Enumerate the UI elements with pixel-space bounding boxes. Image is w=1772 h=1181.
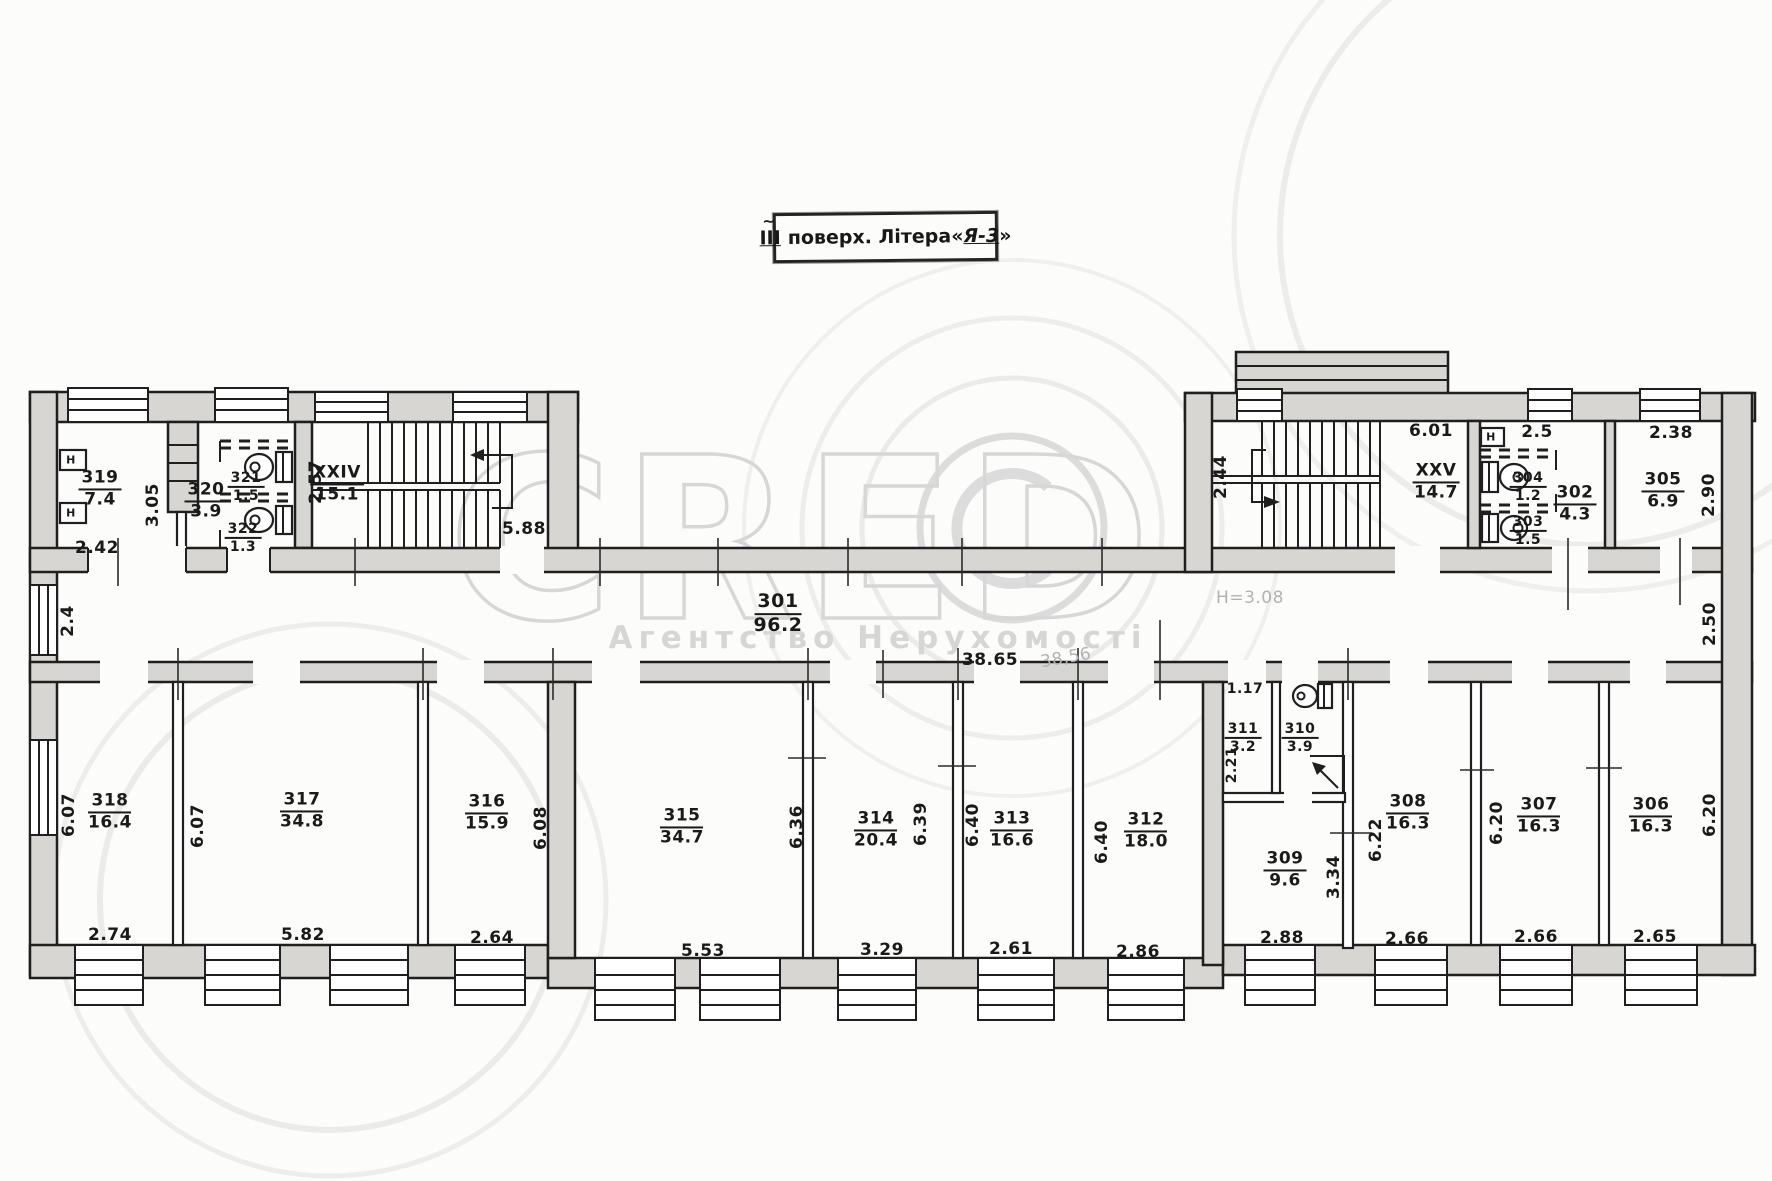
dim-corridor-length: 38.65 — [962, 650, 1018, 670]
room-number: 319 — [79, 468, 122, 490]
room-area: 20.4 — [854, 831, 898, 851]
room-label-316: 316 15.9 — [465, 792, 509, 833]
dim-313-left: 6.40 — [963, 803, 983, 847]
dim-317-bottom: 5.82 — [281, 925, 325, 945]
room-label-312: 312 18.0 — [1124, 810, 1168, 851]
room-label-302: 302 4.3 — [1554, 483, 1597, 524]
floor-plan-page: CRED Агентство Нерухомості — [0, 0, 1772, 1181]
dim-319-opening: 2.42 — [75, 538, 119, 558]
shower-icon-310 — [1310, 756, 1344, 792]
room-area: 34.8 — [280, 812, 324, 832]
room-label-322: 322 1.3 — [225, 521, 262, 555]
room-number: 312 — [1124, 810, 1167, 832]
room-area: 7.4 — [84, 490, 116, 510]
room-number: 303 — [1510, 514, 1547, 532]
room-area: 4.3 — [1559, 505, 1591, 525]
room-area: 16.4 — [88, 813, 132, 833]
room-number: 310 — [1282, 721, 1319, 739]
dim-305-right: 2.90 — [1699, 473, 1719, 517]
room-number: 314 — [854, 809, 897, 831]
room-number: 318 — [88, 791, 131, 813]
dim-314-bottom: 3.29 — [860, 940, 904, 960]
niche-symbol: Н — [1486, 431, 1496, 444]
room-label-301-corridor: 301 96.2 — [754, 591, 803, 637]
room-label-317: 317 34.8 — [280, 790, 324, 831]
room-number: 306 — [1629, 795, 1672, 817]
room-number: 320 — [185, 480, 228, 502]
room-area: 16.6 — [990, 831, 1034, 851]
room-number: 302 — [1554, 483, 1597, 505]
room-area: 16.3 — [1386, 814, 1430, 834]
room-area: 1.5 — [233, 488, 259, 504]
room-number: 321 — [228, 470, 265, 488]
room-number: 304 — [1510, 470, 1547, 488]
dim-308-left: 6.22 — [1366, 818, 1386, 862]
stair-name: XXV — [1413, 461, 1460, 483]
title-close-quote: » — [999, 225, 1012, 247]
room-number: 311 — [1225, 721, 1262, 739]
room-area: 3.9 — [190, 502, 222, 522]
dim-312-left: 6.40 — [1092, 820, 1112, 864]
room-number: 313 — [990, 809, 1033, 831]
room-area: 34.7 — [660, 828, 704, 848]
dim-306-right: 6.20 — [1700, 793, 1720, 837]
walls-bottom-row — [30, 682, 1755, 1020]
dim-308-bottom: 2.66 — [1385, 929, 1429, 949]
dim-309-bottom: 2.88 — [1260, 928, 1304, 948]
room-number: 309 — [1264, 849, 1307, 871]
dim-318-bottom: 2.74 — [88, 925, 132, 945]
room-label-320: 320 3.9 — [185, 480, 228, 521]
floor-plan-linework: CRED Агентство Нерухомості — [0, 0, 1772, 1181]
room-area: 15.9 — [465, 814, 509, 834]
title-floor-tilde: ~ — [762, 212, 775, 230]
room-label-318: 318 16.4 — [88, 791, 132, 832]
dim-307-bottom: 2.66 — [1514, 927, 1558, 947]
dim-311-left: 2.21 — [1224, 747, 1240, 784]
toilet-icon-310 — [1293, 684, 1332, 708]
room-area: 3.9 — [1287, 739, 1313, 755]
dim-317-left: 6.07 — [188, 804, 208, 848]
room-label-305: 305 6.9 — [1642, 470, 1685, 511]
dim-313-bottom: 2.61 — [989, 939, 1033, 959]
room-label-313: 313 16.6 — [990, 809, 1034, 850]
room-area: 6.9 — [1647, 492, 1679, 512]
dim-316-right: 6.08 — [531, 806, 551, 850]
dim-302-top: 2.5 — [1521, 422, 1553, 442]
title-text: поверх. Літера — [788, 225, 952, 249]
title-open-quote: « — [951, 225, 964, 247]
room-area: 16.3 — [1629, 817, 1673, 837]
room-label-315: 315 34.7 — [660, 806, 704, 847]
niche-symbol: Н — [66, 454, 76, 467]
room-number: 308 — [1386, 792, 1429, 814]
dim-315-bottom: 5.53 — [681, 941, 725, 961]
dim-stair25-landing: 2.44 — [1211, 455, 1231, 499]
room-number: 307 — [1517, 795, 1560, 817]
dim-316-bottom: 2.64 — [470, 928, 514, 948]
room-number: 322 — [225, 521, 262, 539]
dim-stair24-width: 5.88 — [502, 519, 546, 539]
dim-stair24-depth: 2.57 — [306, 460, 326, 504]
dim-309-right: 3.34 — [1324, 855, 1344, 899]
stair-label-xxv: XXV 14.7 — [1413, 461, 1460, 502]
room-label-321: 321 1.5 — [228, 470, 265, 504]
dim-307-left: 6.20 — [1487, 801, 1507, 845]
room-label-306: 306 16.3 — [1629, 795, 1673, 836]
room-label-314: 314 20.4 — [854, 809, 898, 850]
room-label-309: 309 9.6 — [1264, 849, 1307, 890]
room-area: 1.5 — [1515, 532, 1541, 548]
room-label-308: 308 16.3 — [1386, 792, 1430, 833]
dim-shaft-319: 3.05 — [143, 483, 163, 527]
room-area: 18.0 — [1124, 832, 1168, 852]
room-number: 305 — [1642, 470, 1685, 492]
note-ceiling-height: H=3.08 — [1216, 588, 1284, 608]
room-label-304: 304 1.2 — [1510, 470, 1547, 504]
dim-314-right: 6.39 — [911, 802, 931, 846]
room-area: 16.3 — [1517, 817, 1561, 837]
dim-305-top: 2.38 — [1649, 423, 1693, 443]
room-area: 1.2 — [1515, 488, 1541, 504]
room-area: 9.6 — [1269, 871, 1301, 891]
title-floor: ~ ІІІ — [759, 227, 780, 249]
dim-312-bottom: 2.86 — [1116, 942, 1160, 962]
room-label-319: 319 7.4 — [79, 468, 122, 509]
dim-306-bottom: 2.65 — [1633, 927, 1677, 947]
title-block: ~ ІІІ поверх. Літера « Я-3 » — [773, 211, 999, 263]
room-area: 1.3 — [230, 539, 256, 555]
dim-311-top: 1.17 — [1227, 681, 1264, 697]
dim-corridor-left: 2.4 — [58, 605, 78, 637]
dim-314-left: 6.36 — [787, 805, 807, 849]
room-number: 316 — [465, 792, 508, 814]
dim-stair25-hall: 6.01 — [1409, 421, 1453, 441]
dim-corridor-right: 2.50 — [1700, 602, 1720, 646]
room-number: 301 — [754, 591, 801, 615]
room-number: 317 — [280, 790, 323, 812]
room-label-303: 303 1.5 — [1510, 514, 1547, 548]
room-number: 315 — [660, 806, 703, 828]
stair-area: 14.7 — [1414, 483, 1458, 503]
dim-318-left: 6.07 — [59, 793, 79, 837]
room-label-307: 307 16.3 — [1517, 795, 1561, 836]
room-area: 96.2 — [754, 615, 803, 637]
niche-symbol: Н — [66, 507, 76, 520]
title-letter: Я-3 — [963, 225, 999, 247]
room-label-310: 310 3.9 — [1282, 721, 1319, 755]
